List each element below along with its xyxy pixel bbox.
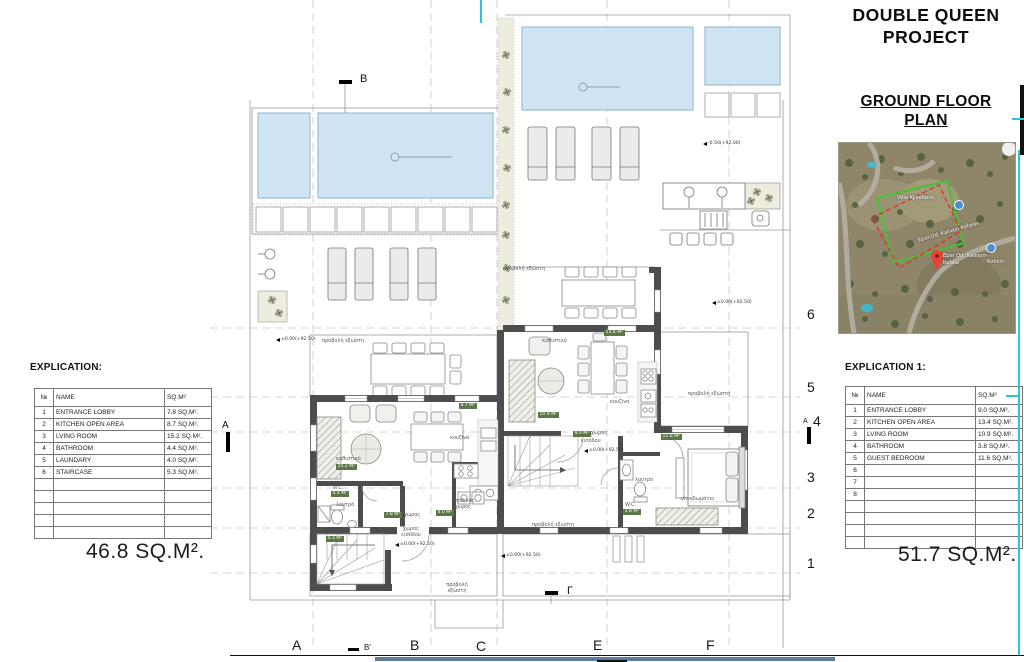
area-badge-wc-left: 4.4 M² [331, 491, 349, 497]
table-row: 1ENTRANCE LOBBY7.8 SQ.M². [35, 407, 212, 419]
section-a-right-label: A [803, 418, 808, 425]
room-label-hall-word-right: χώρος [591, 431, 607, 437]
level-flag-icon [276, 338, 280, 342]
area-badge-stairs-left: 5.3 M² [326, 536, 344, 542]
table-row: 7 [846, 477, 1023, 489]
map-label-pin1: Epar.Od. Kalivon- [943, 253, 988, 259]
level-mark-entry-left: ±0.00(+92.50) [395, 542, 435, 547]
outdoor-shower [258, 249, 275, 279]
swimming-pools [258, 27, 780, 198]
section-b-prime-bar [348, 648, 359, 651]
grid-number-3: 3 [807, 469, 815, 485]
level-flag-icon [395, 543, 399, 547]
level-mark-terrace: ±0.00(+92.50) [712, 300, 752, 305]
table-row-empty [35, 479, 212, 491]
table-row-empty [35, 527, 212, 539]
satellite-location-map: Villa Kyliebeck Epar.Od. Kalivon-Kefalas… [838, 142, 1016, 334]
table-row: 6STAIRCASE5.3 SQ.M². [35, 467, 212, 479]
grid-letter-f: F [706, 637, 715, 653]
grid-number-4: 4 [813, 413, 821, 429]
area-badge-storage-left: 4.0 M² [436, 510, 454, 516]
room-label-bedroom: υπνοδωμάτιο [681, 497, 714, 503]
map-label-poi: Kokkin [987, 259, 1004, 265]
level-flag-icon [712, 301, 716, 305]
room-label-hall-left: χώρος εισόδου [394, 527, 428, 539]
table-row-empty [846, 501, 1023, 513]
table-row-empty [35, 503, 212, 515]
left-explication-heading: EXPLICATION: [30, 362, 102, 373]
section-a-left-label: A [222, 420, 229, 431]
grid-number-2: 2 [807, 505, 815, 521]
level-flag-icon [584, 449, 588, 453]
grid-letter-e: E [593, 637, 602, 653]
cyan-tick [1012, 118, 1024, 120]
table-row-empty [35, 491, 212, 503]
section-gamma-label: Γ [567, 585, 573, 597]
drawing-title: GROUND FLOOR PLAN [842, 92, 1010, 131]
area-badge-hall-left: 7.8 M² [384, 512, 402, 518]
left-total-area: 46.8 SQ.M². [86, 540, 205, 564]
floor-plan-sheet: -0.50(+92.00) ±0.00(+92.50) ±0.00(+92.50… [0, 0, 1024, 662]
room-label-balcony: προβολή εξώστη [503, 267, 545, 273]
table-row: 2KITCHEN OPEN AREA8.7 SQ.M². [35, 419, 212, 431]
table-row: 5GUEST BEDROOM11.6 SQ.M². [846, 453, 1023, 465]
map-label-villa: Villa Kyliebeck [897, 195, 934, 201]
table-row-empty [846, 513, 1023, 525]
staircase-right [508, 436, 578, 486]
table-row: 8 [846, 489, 1023, 501]
room-label-hall-word2-right: εισόδου [581, 439, 601, 445]
outdoor-dining-right [562, 267, 636, 318]
table-header-row: № NAME SQ.M² [846, 387, 1023, 405]
area-badge-wc-right: 3.8 M² [623, 509, 641, 515]
map-label-pin2: Kefala [943, 260, 959, 266]
room-label-balcony: προβολή εξώστη [440, 583, 474, 595]
cyan-tick [1006, 395, 1019, 397]
table-row-empty [846, 525, 1023, 537]
poi-icon [955, 201, 964, 210]
level-flag-icon [703, 142, 707, 146]
outdoor-dining-left [371, 343, 461, 396]
section-a-left-bar [226, 432, 230, 452]
grid-letter-c: C [476, 638, 486, 654]
poi-icon [987, 244, 996, 253]
table-row: 5LAUNDARY4.0 SQ.M². [35, 455, 212, 467]
level-mark-left: ±0.00(+92.50) [276, 337, 316, 342]
grid-number-1: 1 [807, 555, 815, 571]
section-a-right-bar [807, 427, 811, 444]
room-label-balcony: προβολή εξώστη [688, 392, 730, 398]
level-flag-icon [501, 554, 505, 558]
room-label-wc-right: W.C. [625, 503, 636, 509]
table-row: 1ENTRANCE LOBBY9.0 SQ.M². [846, 405, 1023, 417]
area-badge-living-right: 10.9 M² [538, 412, 559, 418]
table-row: 2KITCHEN OPEN AREA13.4 SQ.M². [846, 417, 1023, 429]
cyan-accent-top [480, 0, 482, 23]
room-label-living-right: καθιστικό [542, 339, 567, 345]
area-badge-kitchen-right: 13.4 M² [604, 330, 625, 336]
area-badge-bedroom-right: 11.6 M² [661, 434, 682, 440]
grid-number-5: 5 [807, 379, 815, 395]
cyan-accent-right [1018, 150, 1020, 655]
table-row-empty [35, 515, 212, 527]
section-b-label: B [360, 73, 367, 85]
room-label-storage: αποθ/κός χώρος [446, 499, 480, 511]
level-mark-entry-right: ±0.00(+92.50) [584, 448, 624, 453]
room-label-kitchen-left: κουζίνα [450, 436, 469, 442]
area-badge-kitchen-left: 8.7 M² [459, 403, 477, 409]
section-gamma-bar [545, 591, 558, 595]
table-row: 4BATHROOM3.8 SQ.M². [846, 441, 1023, 453]
right-total-area: 51.7 SQ.M². [898, 543, 1017, 567]
sheet-edge-bar [1020, 85, 1024, 155]
table-row: 3LVING ROOM10.9 SQ.M². [846, 429, 1023, 441]
table-row: 4BATHROOM4.4 SQ.M². [35, 443, 212, 455]
room-label-kitchen-right: κουζίνα [610, 400, 629, 406]
left-explication-table: № NAME SQ.M² 1ENTRANCE LOBBY7.8 SQ.M². 2… [34, 388, 212, 539]
room-label-bath-right: λουτρό [635, 478, 653, 484]
grid-letter-a: A [292, 637, 301, 653]
project-title: DOUBLE QUEEN PROJECT [834, 5, 1018, 49]
grid-number-6: 6 [807, 306, 815, 322]
area-badge-hall-right: 9.0 M² [573, 431, 591, 437]
room-label-bath-left: λουτρό [336, 503, 354, 509]
grid-letter-b-prime: B' [364, 643, 371, 652]
room-label-balcony: προβολή εξώστη [322, 339, 364, 345]
right-explication-heading: EXPLICATION 1: [845, 362, 926, 373]
room-label-hall-word-left: χώρος [404, 513, 420, 519]
table-row: 6 [846, 465, 1023, 477]
right-explication-table: № NAME SQ.M² 1ENTRANCE LOBBY9.0 SQ.M². 2… [845, 386, 1023, 549]
room-label-living-left: καθιστικό [336, 457, 361, 463]
section-b-bar [339, 80, 352, 84]
area-badge-living-left: 15.2 M² [336, 464, 357, 470]
level-mark-bottom: ±0.00(+92.50) [501, 553, 541, 558]
table-row: 3LVING ROOM15.2 SQ.M². [35, 431, 212, 443]
room-label-balcony: προβολή εξώστη [532, 523, 574, 529]
grid-letter-b: B [410, 637, 419, 653]
table-header-row: № NAME SQ.M² [35, 389, 212, 407]
level-mark-pool: -0.50(+92.00) [703, 141, 740, 146]
